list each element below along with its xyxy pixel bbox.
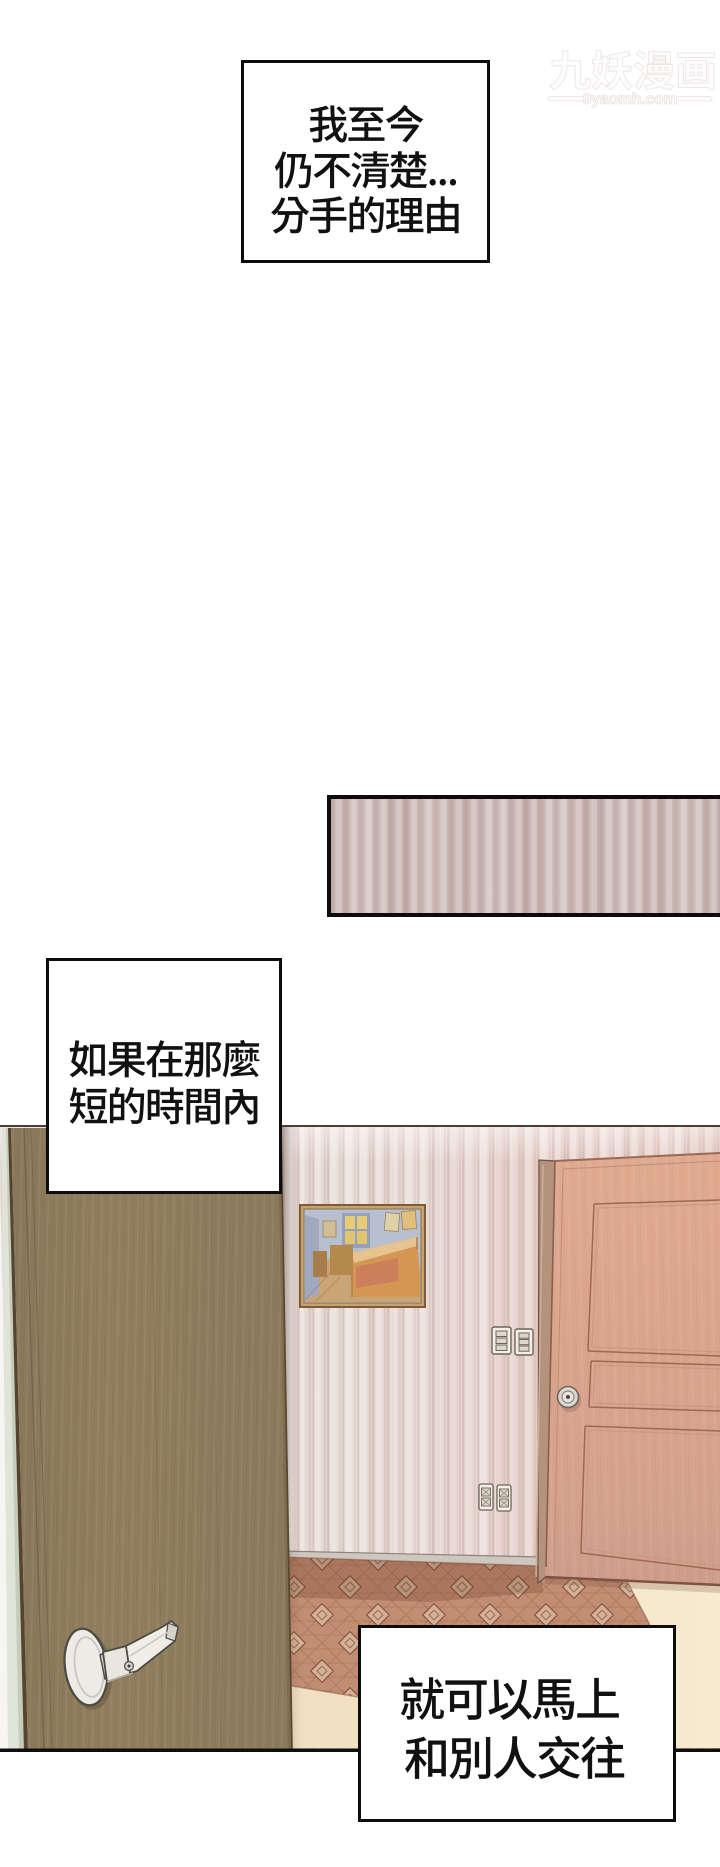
svg-text:9yaomh.com: 9yaomh.com: [583, 91, 678, 108]
